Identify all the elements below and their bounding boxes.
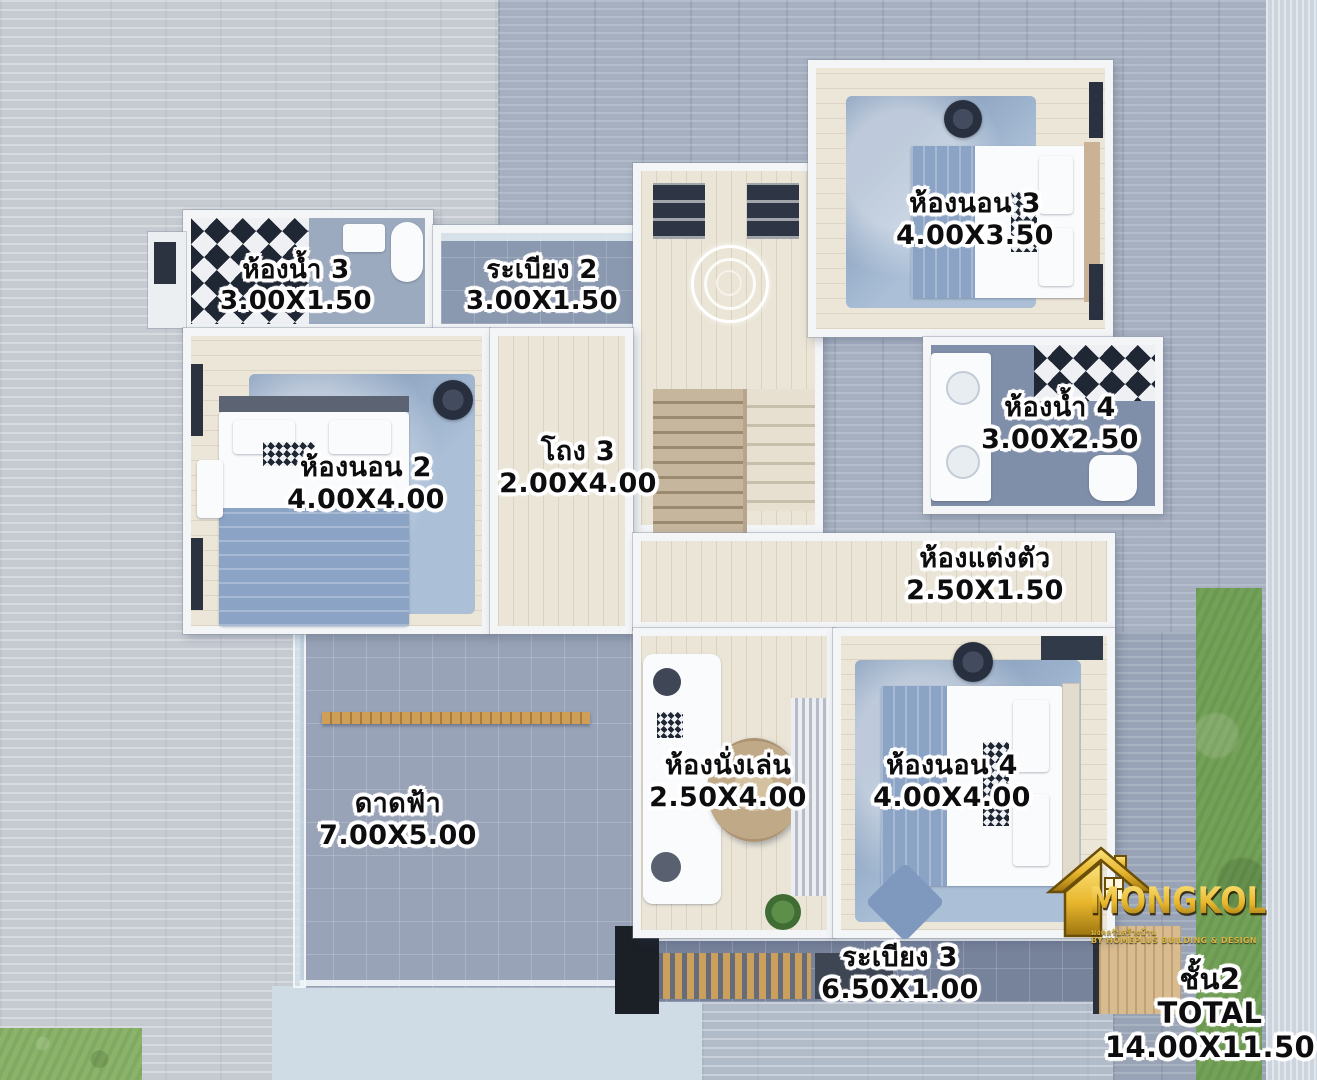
room-size: 2.50X4.00 bbox=[598, 782, 858, 814]
room-label-hall3: โถง 3 2.00X4.00 bbox=[448, 436, 708, 500]
bedroom2-pillow-2 bbox=[329, 420, 391, 454]
room-name: ห้องนอน 3 bbox=[845, 188, 1105, 220]
bedroom2-window-2 bbox=[191, 538, 203, 610]
floor-plan-canvas: ห้องน้ำ 3 3.00X1.50 ระเบียง 2 3.00X1.50 … bbox=[0, 0, 1317, 1080]
room-name: ระเบียง 3 bbox=[770, 942, 1030, 974]
room-name: ระเบียง 2 bbox=[412, 255, 672, 286]
bedroom2-desk bbox=[197, 460, 223, 518]
sofa-pillow-dark-1 bbox=[653, 668, 681, 696]
bedroom3-window-1 bbox=[1089, 82, 1103, 138]
stair-doorway bbox=[615, 926, 659, 1014]
chandelier-core bbox=[716, 270, 742, 296]
room-size: 2.50X1.50 bbox=[855, 575, 1115, 607]
mongkol-logo: MONGKOL มงคลรับสร้างบ้าน BY HOMEPLUS BUI… bbox=[1045, 840, 1265, 952]
balcony2-glass-rail bbox=[441, 233, 645, 241]
bedroom4-fan bbox=[953, 642, 993, 682]
room-name: ห้องนั่งเล่น bbox=[598, 750, 858, 782]
summary-total-label: TOTAL bbox=[1095, 996, 1317, 1030]
summary-floor: ชั้น2 bbox=[1095, 962, 1317, 996]
stairs-flight-up bbox=[747, 389, 815, 511]
bedroom2-blanket bbox=[219, 508, 409, 626]
toilet-bathroom4 bbox=[1089, 455, 1137, 501]
room-size: 2.00X4.00 bbox=[448, 468, 708, 500]
stair-stringer bbox=[743, 389, 747, 533]
bedroom2-bed bbox=[219, 412, 409, 626]
sofa-pillow-dark-2 bbox=[651, 852, 681, 882]
room-size: 3.00X1.50 bbox=[166, 286, 426, 317]
skylight-right bbox=[747, 183, 799, 239]
room-size: 7.00X5.00 bbox=[268, 820, 528, 852]
bedroom2-headboard bbox=[219, 396, 409, 412]
room-name: ห้องนอน 4 bbox=[822, 750, 1082, 782]
room-size: 6.50X1.00 bbox=[770, 974, 1030, 1006]
floor-summary: ชั้น2 TOTAL 14.00X11.50 bbox=[1095, 962, 1317, 1065]
room-size: 3.00X2.50 bbox=[930, 424, 1190, 456]
room-name: ห้องน้ำ 3 bbox=[166, 255, 426, 286]
room-label-bathroom3: ห้องน้ำ 3 3.00X1.50 bbox=[166, 255, 426, 316]
bedroom2-fan bbox=[433, 380, 473, 420]
sofa-pillow-checker bbox=[657, 712, 683, 738]
room-label-balcony3: ระเบียง 3 6.50X1.00 bbox=[770, 942, 1030, 1006]
lower-patio bbox=[702, 1002, 1113, 1080]
ground-edge-strip bbox=[1266, 0, 1317, 1080]
plant bbox=[765, 894, 801, 930]
deck-bench bbox=[322, 712, 590, 724]
room-size: 3.00X1.50 bbox=[412, 286, 672, 317]
room-size: 4.00X3.50 bbox=[845, 220, 1105, 252]
bedroom4-wardrobe bbox=[1041, 636, 1103, 660]
logo-tagline-en: BY HOMEPLUS BUILDING & DESIGN bbox=[1091, 936, 1257, 945]
bedroom3-fan bbox=[944, 100, 982, 138]
room-label-living: ห้องนั่งเล่น 2.50X4.00 bbox=[598, 750, 858, 814]
summary-size: 14.00X11.50 bbox=[1095, 1030, 1317, 1064]
room-label-bedroom4: ห้องนอน 4 4.00X4.00 bbox=[822, 750, 1082, 814]
toilet-bathroom3 bbox=[343, 224, 385, 252]
room-label-bedroom3: ห้องนอน 3 4.00X3.50 bbox=[845, 188, 1105, 252]
bedroom2-window-1 bbox=[191, 364, 203, 436]
room-label-deck: ดาดฟ้า 7.00X5.00 bbox=[268, 788, 528, 852]
room-label-dressing: ห้องแต่งตัว 2.50X1.50 bbox=[855, 543, 1115, 607]
room-name: ดาดฟ้า bbox=[268, 788, 528, 820]
bedroom3-window-2 bbox=[1089, 264, 1103, 320]
room-name: ห้องน้ำ 4 bbox=[930, 392, 1190, 424]
room-name: ห้องแต่งตัว bbox=[855, 543, 1115, 575]
room-label-bathroom4: ห้องน้ำ 4 3.00X2.50 bbox=[930, 392, 1190, 456]
room-label-balcony2: ระเบียง 2 3.00X1.50 bbox=[412, 255, 672, 316]
grass-patch-corner bbox=[0, 1028, 142, 1080]
brand-text: MONGKOL bbox=[1089, 880, 1266, 922]
skylight-left bbox=[653, 183, 705, 239]
chandelier bbox=[691, 245, 769, 323]
room-size: 4.00X4.00 bbox=[822, 782, 1082, 814]
room-name: โถง 3 bbox=[448, 436, 708, 468]
